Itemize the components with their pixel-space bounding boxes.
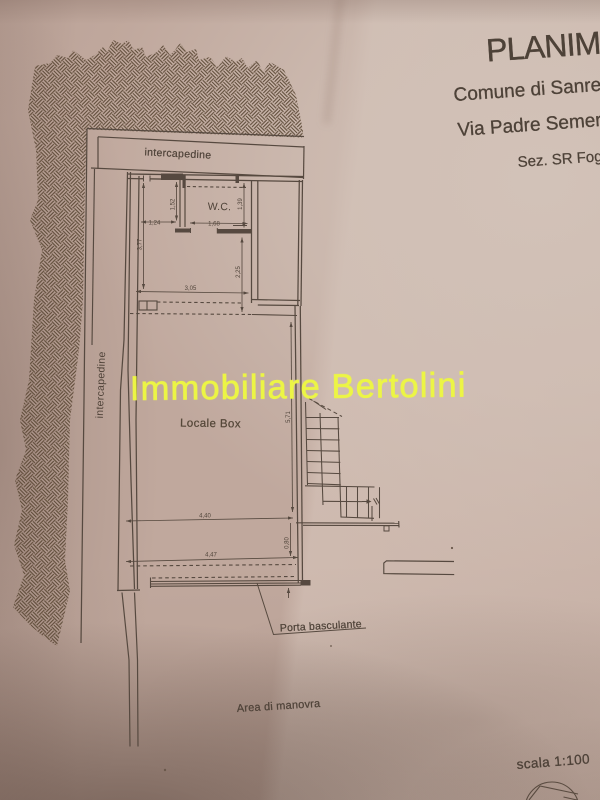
- svg-text:intercapedine: intercapedine: [94, 351, 108, 418]
- svg-text:5,71: 5,71: [286, 411, 292, 423]
- svg-text:Via Padre Semeria: Via Padre Semeria: [457, 109, 600, 141]
- svg-text:scala 1:100: scala 1:100: [516, 751, 590, 772]
- svg-text:1,52: 1,52: [171, 198, 177, 210]
- svg-text:4,40: 4,40: [199, 514, 211, 520]
- svg-text:W.C.: W.C.: [208, 201, 232, 214]
- svg-text:Immobiliare Bertolini: Immobiliare Bertolini: [130, 366, 467, 408]
- svg-text:0,80: 0,80: [285, 537, 291, 549]
- svg-text:3,05: 3,05: [185, 286, 197, 292]
- svg-text:PLANIMETRIA: PLANIMETRIA: [485, 18, 600, 68]
- svg-text:4,47: 4,47: [205, 553, 217, 559]
- svg-text:Area di manovra: Area di manovra: [236, 698, 321, 715]
- svg-text:1,39: 1,39: [238, 198, 244, 210]
- svg-text:Sez. SR Fog: Sez. SR Fog: [517, 148, 600, 171]
- svg-text:1,24: 1,24: [149, 221, 161, 227]
- svg-text:3,77: 3,77: [138, 238, 144, 250]
- svg-text:Locale Box: Locale Box: [180, 417, 241, 430]
- svg-text:Comune di Sanremo: Comune di Sanremo: [453, 73, 600, 106]
- svg-text:2,25: 2,25: [236, 266, 242, 278]
- svg-text:Porta basculante: Porta basculante: [280, 618, 363, 634]
- svg-text:intercapedine: intercapedine: [144, 146, 211, 161]
- svg-text:1,68: 1,68: [208, 222, 220, 228]
